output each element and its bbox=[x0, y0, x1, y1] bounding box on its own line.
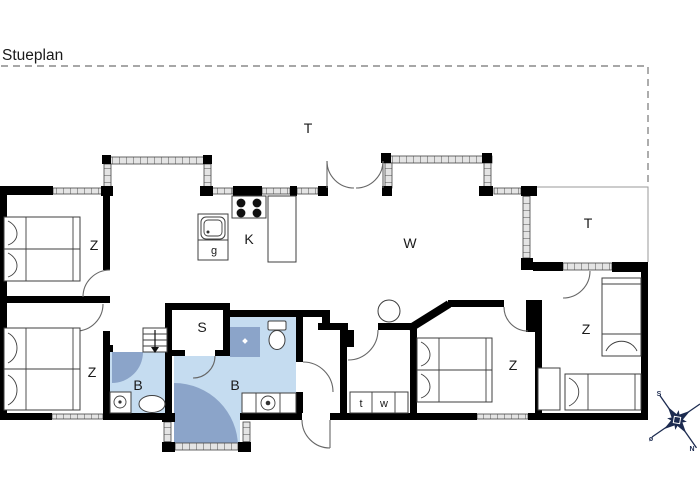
stove-icon bbox=[232, 196, 266, 218]
door-arc bbox=[76, 304, 103, 331]
double-bed-icon bbox=[417, 338, 492, 402]
room-label-bedroom-nw: Z bbox=[90, 237, 99, 253]
entrance-door-arc bbox=[302, 420, 330, 448]
room-label-bedroom-se: Z bbox=[582, 321, 591, 337]
bay-window-side bbox=[204, 164, 211, 188]
washbasin-icon bbox=[139, 396, 165, 413]
floor-plan-page: Stueplan T T Z Z Z Z K g W S B B t w S N… bbox=[0, 0, 700, 500]
room-label-bedroom-sw: Z bbox=[88, 364, 97, 380]
garden-door bbox=[174, 443, 238, 450]
window bbox=[523, 196, 530, 258]
window bbox=[494, 188, 521, 194]
double-door-arc bbox=[327, 161, 354, 188]
room-label-terrace-top: T bbox=[304, 120, 313, 136]
label-dryer: t bbox=[359, 398, 362, 410]
room-label-bath-small: B bbox=[133, 377, 142, 393]
wardrobe-icon bbox=[538, 368, 560, 410]
door-arc bbox=[504, 307, 528, 331]
compass-north-label: N bbox=[689, 446, 694, 453]
plot-boundary-dashed-line bbox=[1, 66, 648, 186]
door-arc bbox=[303, 362, 333, 392]
bay-window-side bbox=[385, 163, 392, 188]
floor-plan-drawing: Stueplan T T Z Z Z Z K g W S B B t w S N… bbox=[0, 0, 700, 500]
double-bed-icon bbox=[4, 217, 80, 281]
single-bed-icon bbox=[565, 374, 641, 410]
double-bed-icon bbox=[4, 328, 80, 410]
room-label-living: W bbox=[403, 235, 417, 251]
room-label-kitchen: K bbox=[244, 231, 254, 247]
window bbox=[243, 422, 250, 442]
bay-window-side bbox=[484, 163, 491, 188]
compass-rose-icon: S N ø bbox=[647, 386, 700, 457]
door-arc bbox=[83, 270, 110, 297]
wood-stove-icon bbox=[378, 300, 400, 322]
vanity-washbasin-icon bbox=[242, 393, 296, 413]
window bbox=[212, 188, 233, 194]
room-label-bedroom-s: Z bbox=[509, 357, 518, 373]
terrace-door bbox=[563, 263, 612, 270]
toilet-icon bbox=[268, 321, 286, 350]
double-door-arc bbox=[356, 161, 383, 188]
bay-window bbox=[104, 157, 211, 164]
label-washer: w bbox=[379, 398, 388, 410]
window bbox=[53, 188, 103, 194]
page-title: Stueplan bbox=[2, 47, 63, 64]
window bbox=[164, 422, 171, 442]
bay-window-side bbox=[104, 164, 111, 188]
room-label-s: S bbox=[197, 319, 206, 335]
window bbox=[297, 188, 318, 194]
room-label-terrace-right: T bbox=[584, 215, 593, 231]
terrace-door-arc bbox=[563, 271, 590, 298]
window bbox=[477, 414, 528, 419]
furniture bbox=[4, 196, 641, 413]
label-kitchen-g: g bbox=[211, 245, 217, 257]
compass-east-label: ø bbox=[649, 436, 654, 443]
single-bed-icon bbox=[602, 278, 641, 356]
room-label-bath-main: B bbox=[230, 377, 239, 393]
shower-tray-icon bbox=[110, 392, 131, 413]
window bbox=[52, 414, 103, 419]
compass-south-label: S bbox=[657, 391, 662, 398]
bay-window bbox=[384, 156, 492, 163]
stairs-icon bbox=[143, 328, 167, 353]
window bbox=[262, 188, 290, 194]
